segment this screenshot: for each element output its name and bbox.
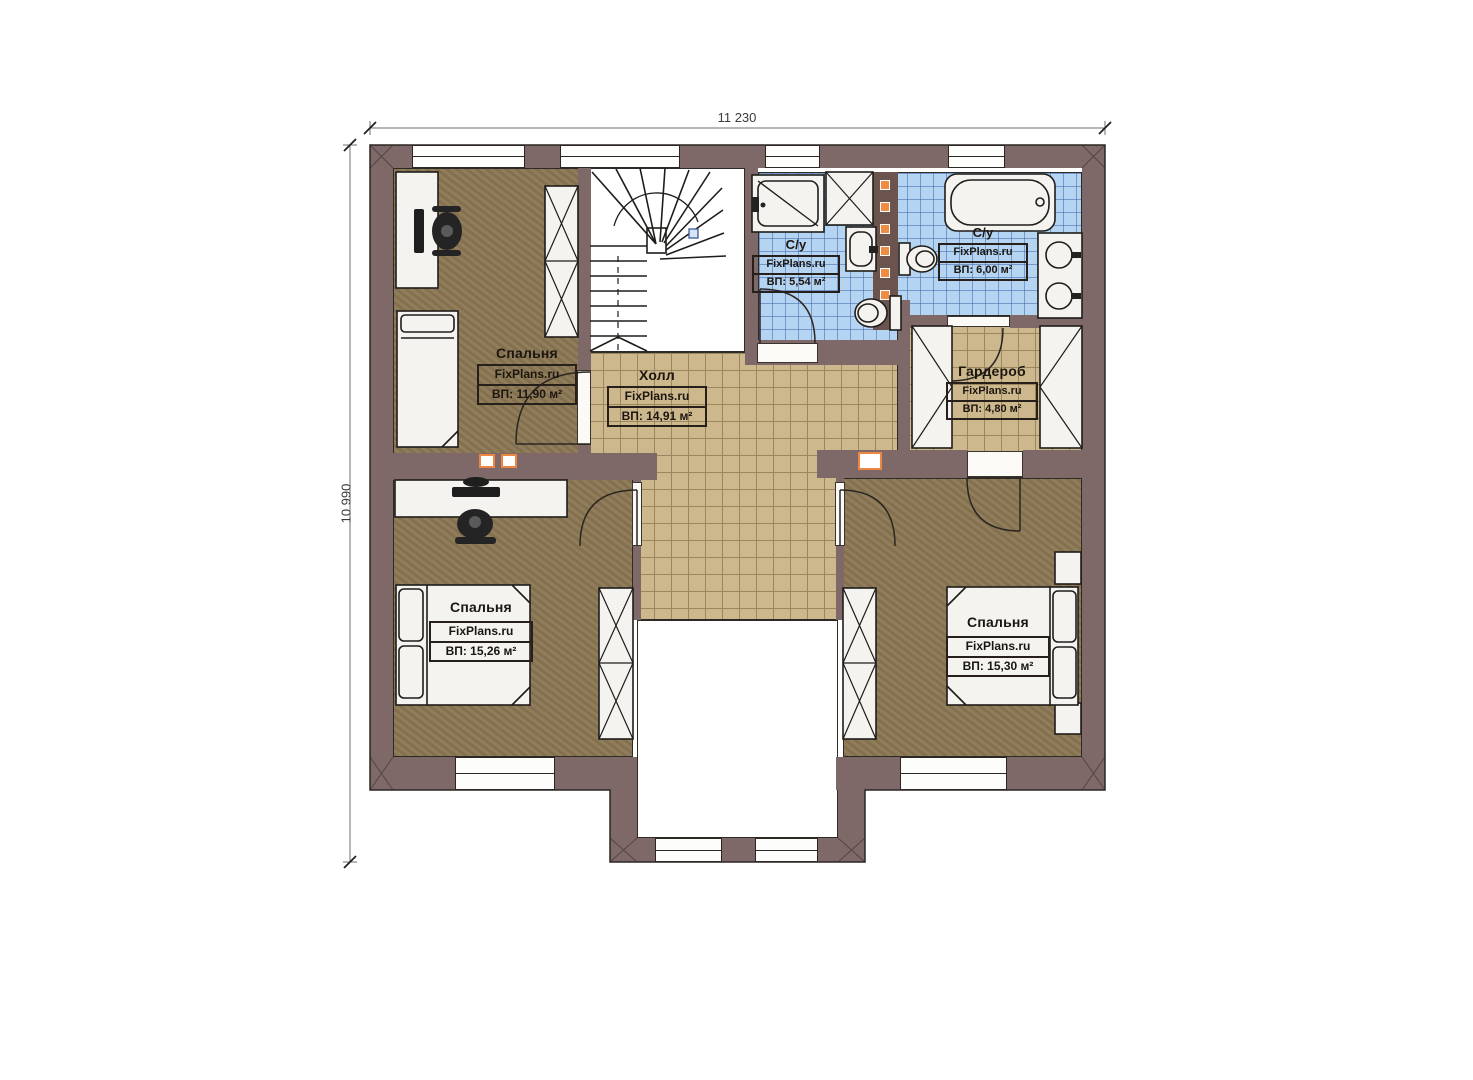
vent-square <box>858 452 882 470</box>
window-pane <box>656 850 721 851</box>
door-opening-wardrobe-bedroom <box>967 451 1023 477</box>
vent-square <box>501 454 517 468</box>
window-pane <box>766 156 819 157</box>
watermark: FixPlans.ru <box>948 384 1036 400</box>
vent-square <box>479 454 495 468</box>
room-name: Гардероб <box>922 364 1062 379</box>
vent-square <box>880 246 890 256</box>
room-area: ВП: 6,00 м² <box>940 261 1026 279</box>
door-opening-bathroom-left <box>757 343 818 363</box>
room-name: Спальня <box>457 346 597 361</box>
vent-square <box>880 268 890 278</box>
wall-bedroom-tl-right-upper <box>578 168 591 370</box>
window-pane <box>949 156 1004 157</box>
label-bedroom-bl: Спальня FixPlans.ru ВП: 15,26 м² <box>411 600 551 662</box>
room-area: ВП: 14,91 м² <box>609 406 705 425</box>
label-hall: Холл FixPlans.ru ВП: 14,91 м² <box>587 368 727 427</box>
staircase-floor <box>590 168 745 352</box>
watermark: FixPlans.ru <box>754 257 838 273</box>
area-box: FixPlans.ru ВП: 11,90 м² <box>477 364 577 405</box>
area-box: FixPlans.ru ВП: 15,30 м² <box>946 636 1050 677</box>
label-bathroom-right: С/у FixPlans.ru ВП: 6,00 м² <box>923 226 1043 281</box>
wall-bathroom-right-bottom-b <box>1010 315 1082 328</box>
window-top-1 <box>412 145 525 168</box>
door-opening-bedroom-bl <box>632 482 642 546</box>
vent-square <box>880 224 890 234</box>
room-name: Спальня <box>411 600 551 615</box>
vent-square <box>880 180 890 190</box>
wall-above-bedroom-br-a <box>817 450 967 478</box>
window-pane <box>561 156 679 157</box>
door-opening-wardrobe <box>947 316 1010 327</box>
vent-square <box>880 202 890 212</box>
label-bedroom-tl: Спальня FixPlans.ru ВП: 11,90 м² <box>457 346 597 405</box>
room-area: ВП: 15,26 м² <box>431 641 531 660</box>
dimension-height: 10 990 <box>339 464 354 544</box>
area-box: FixPlans.ru ВП: 5,54 м² <box>752 255 840 293</box>
watermark: FixPlans.ru <box>431 623 531 640</box>
room-area: ВП: 4,80 м² <box>948 400 1036 418</box>
label-bathroom-left: С/у FixPlans.ru ВП: 5,54 м² <box>736 238 856 293</box>
window-bottom-left <box>455 757 555 790</box>
wall-above-bedroom-br-b <box>1023 450 1105 478</box>
door-opening-bedroom-br <box>835 482 845 546</box>
room-name: С/у <box>736 238 856 252</box>
window-top-4 <box>948 145 1005 168</box>
room-name: Холл <box>587 368 727 383</box>
room-area: ВП: 5,54 м² <box>754 273 838 291</box>
room-name: Спальня <box>928 615 1068 630</box>
label-wardrobe: Гардероб FixPlans.ru ВП: 4,80 м² <box>922 364 1062 420</box>
label-bedroom-br: Спальня FixPlans.ru ВП: 15,30 м² <box>928 615 1068 677</box>
dimension-width: 11 230 <box>697 110 777 125</box>
window-pane <box>756 850 817 851</box>
area-box: FixPlans.ru ВП: 6,00 м² <box>938 243 1028 281</box>
watermark: FixPlans.ru <box>609 388 705 405</box>
window-pane <box>456 773 554 774</box>
wall-bathroom-right-bottom-a <box>898 315 947 328</box>
room-area: ВП: 15,30 м² <box>948 656 1048 675</box>
window-pane <box>901 773 1006 774</box>
window-top-3 <box>765 145 820 168</box>
floor-plan-canvas: 11 230 10 990 Спальня FixPlans.ru ВП: 11… <box>0 0 1473 1080</box>
window-bottom-right <box>900 757 1007 790</box>
window-pane <box>413 156 524 157</box>
vent-square <box>880 290 890 300</box>
room-area: ВП: 11,90 м² <box>479 384 575 403</box>
wall-outer-left <box>370 145 393 790</box>
watermark: FixPlans.ru <box>940 245 1026 261</box>
area-box: FixPlans.ru ВП: 14,91 м² <box>607 386 707 427</box>
wall-bay-bottom <box>610 838 865 862</box>
window-top-2 <box>560 145 680 168</box>
area-box: FixPlans.ru ВП: 4,80 м² <box>946 382 1038 420</box>
bedroom-top-left-floor <box>393 168 590 478</box>
room-name: С/у <box>923 226 1043 240</box>
watermark: FixPlans.ru <box>479 366 575 383</box>
window-bay-1 <box>655 838 722 862</box>
void-opening <box>637 620 838 838</box>
wall-under-bedroom-tl <box>393 453 657 480</box>
watermark: FixPlans.ru <box>948 638 1048 655</box>
area-box: FixPlans.ru ВП: 15,26 м² <box>429 621 533 662</box>
window-bay-2 <box>755 838 818 862</box>
